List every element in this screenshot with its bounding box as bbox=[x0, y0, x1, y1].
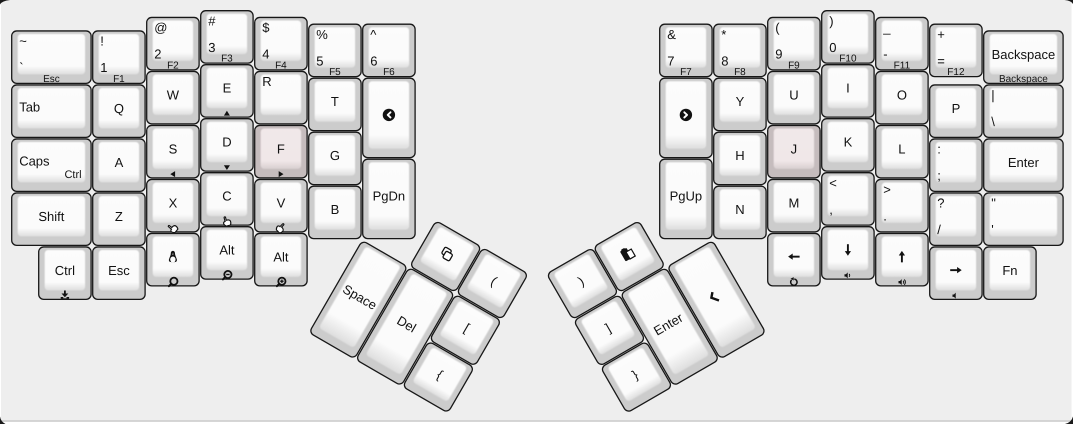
svg-text:F10: F10 bbox=[839, 54, 857, 65]
svg-text:F5: F5 bbox=[329, 67, 341, 78]
svg-text:&: & bbox=[667, 27, 676, 42]
svg-text:Enter: Enter bbox=[1008, 155, 1040, 170]
svg-text:R: R bbox=[262, 74, 271, 89]
svg-text:Esc: Esc bbox=[108, 263, 130, 278]
svg-text:L: L bbox=[898, 141, 905, 156]
svg-text:F1: F1 bbox=[113, 74, 125, 85]
svg-text:Ctrl: Ctrl bbox=[64, 169, 81, 181]
svg-text:W: W bbox=[167, 87, 180, 102]
svg-text:G: G bbox=[330, 148, 340, 163]
svg-text:@: @ bbox=[154, 20, 167, 35]
svg-text:5: 5 bbox=[316, 53, 323, 68]
svg-text:Q: Q bbox=[114, 101, 124, 116]
svg-text:7: 7 bbox=[667, 53, 674, 68]
svg-text:F2: F2 bbox=[167, 60, 179, 71]
svg-text:#: # bbox=[208, 13, 216, 28]
svg-text:": " bbox=[991, 196, 996, 211]
svg-text:): ) bbox=[829, 13, 833, 28]
svg-text:<: < bbox=[829, 175, 837, 190]
svg-text:B: B bbox=[331, 202, 340, 217]
svg-text:+: + bbox=[937, 27, 945, 42]
svg-text:0: 0 bbox=[829, 40, 836, 55]
svg-text:J: J bbox=[791, 141, 798, 156]
svg-text:': ' bbox=[991, 222, 993, 237]
svg-text:Esc: Esc bbox=[43, 74, 60, 85]
svg-text:8: 8 bbox=[721, 53, 728, 68]
svg-text:S: S bbox=[169, 141, 178, 156]
svg-text:%: % bbox=[316, 27, 328, 42]
svg-text:P: P bbox=[952, 101, 961, 116]
svg-text:H: H bbox=[735, 148, 744, 163]
svg-text:Backspace: Backspace bbox=[992, 47, 1056, 62]
svg-text:F7: F7 bbox=[680, 67, 692, 78]
svg-text:*: * bbox=[721, 27, 726, 42]
svg-text:Ctrl: Ctrl bbox=[55, 263, 75, 278]
svg-text:Caps: Caps bbox=[19, 153, 50, 168]
svg-text:F6: F6 bbox=[383, 67, 395, 78]
svg-text:/: / bbox=[937, 222, 941, 237]
svg-text:K: K bbox=[844, 135, 853, 150]
svg-text:Tab: Tab bbox=[19, 99, 40, 114]
svg-text:PgUp: PgUp bbox=[670, 189, 703, 204]
svg-text:A: A bbox=[115, 155, 124, 170]
svg-text:F11: F11 bbox=[894, 60, 911, 71]
svg-text:N: N bbox=[735, 202, 744, 217]
svg-text:U: U bbox=[789, 87, 798, 102]
svg-text:C: C bbox=[222, 189, 231, 204]
svg-text:Backspace: Backspace bbox=[999, 74, 1048, 85]
svg-text:3: 3 bbox=[208, 40, 215, 55]
svg-text:Alt: Alt bbox=[273, 249, 289, 264]
svg-text:T: T bbox=[331, 94, 339, 109]
svg-text:F12: F12 bbox=[947, 67, 965, 78]
svg-text:\: \ bbox=[991, 114, 995, 129]
svg-text:V: V bbox=[277, 195, 286, 210]
svg-text:I: I bbox=[846, 81, 850, 96]
svg-text:4: 4 bbox=[262, 47, 269, 62]
svg-text:Alt: Alt bbox=[219, 243, 235, 258]
svg-text:Z: Z bbox=[115, 209, 123, 224]
svg-text:2: 2 bbox=[154, 47, 161, 62]
svg-text:X: X bbox=[169, 195, 178, 210]
svg-text:_: _ bbox=[882, 20, 891, 35]
svg-text:Y: Y bbox=[736, 94, 745, 109]
svg-text:|: | bbox=[991, 88, 994, 103]
svg-text:PgDn: PgDn bbox=[373, 189, 406, 204]
svg-text:O: O bbox=[897, 87, 907, 102]
svg-text:F3: F3 bbox=[221, 54, 233, 65]
svg-text:`: ` bbox=[19, 60, 23, 75]
svg-text:.: . bbox=[883, 209, 887, 224]
svg-text:F: F bbox=[277, 141, 285, 156]
svg-text:9: 9 bbox=[775, 47, 782, 62]
svg-text::: : bbox=[937, 142, 941, 157]
svg-text:Fn: Fn bbox=[1002, 263, 1017, 278]
svg-text:E: E bbox=[223, 81, 232, 96]
svg-text:F9: F9 bbox=[788, 60, 800, 71]
svg-text:M: M bbox=[788, 195, 799, 210]
svg-text:6: 6 bbox=[370, 53, 377, 68]
svg-text:^: ^ bbox=[370, 27, 377, 42]
svg-text:;: ; bbox=[937, 168, 941, 183]
svg-text:,: , bbox=[829, 202, 833, 217]
svg-text:$: $ bbox=[262, 20, 270, 35]
svg-text:-: - bbox=[883, 47, 887, 62]
svg-text:~: ~ bbox=[19, 34, 27, 49]
svg-text:F4: F4 bbox=[275, 60, 287, 71]
svg-text:D: D bbox=[222, 135, 231, 150]
svg-text:?: ? bbox=[937, 196, 944, 211]
svg-text:1: 1 bbox=[100, 60, 107, 75]
svg-text:F8: F8 bbox=[734, 67, 746, 78]
svg-text:(: ( bbox=[775, 20, 780, 35]
svg-text:=: = bbox=[937, 53, 945, 68]
svg-text:Shift: Shift bbox=[38, 209, 64, 224]
svg-text:!: ! bbox=[100, 34, 104, 49]
svg-text:>: > bbox=[883, 182, 891, 197]
